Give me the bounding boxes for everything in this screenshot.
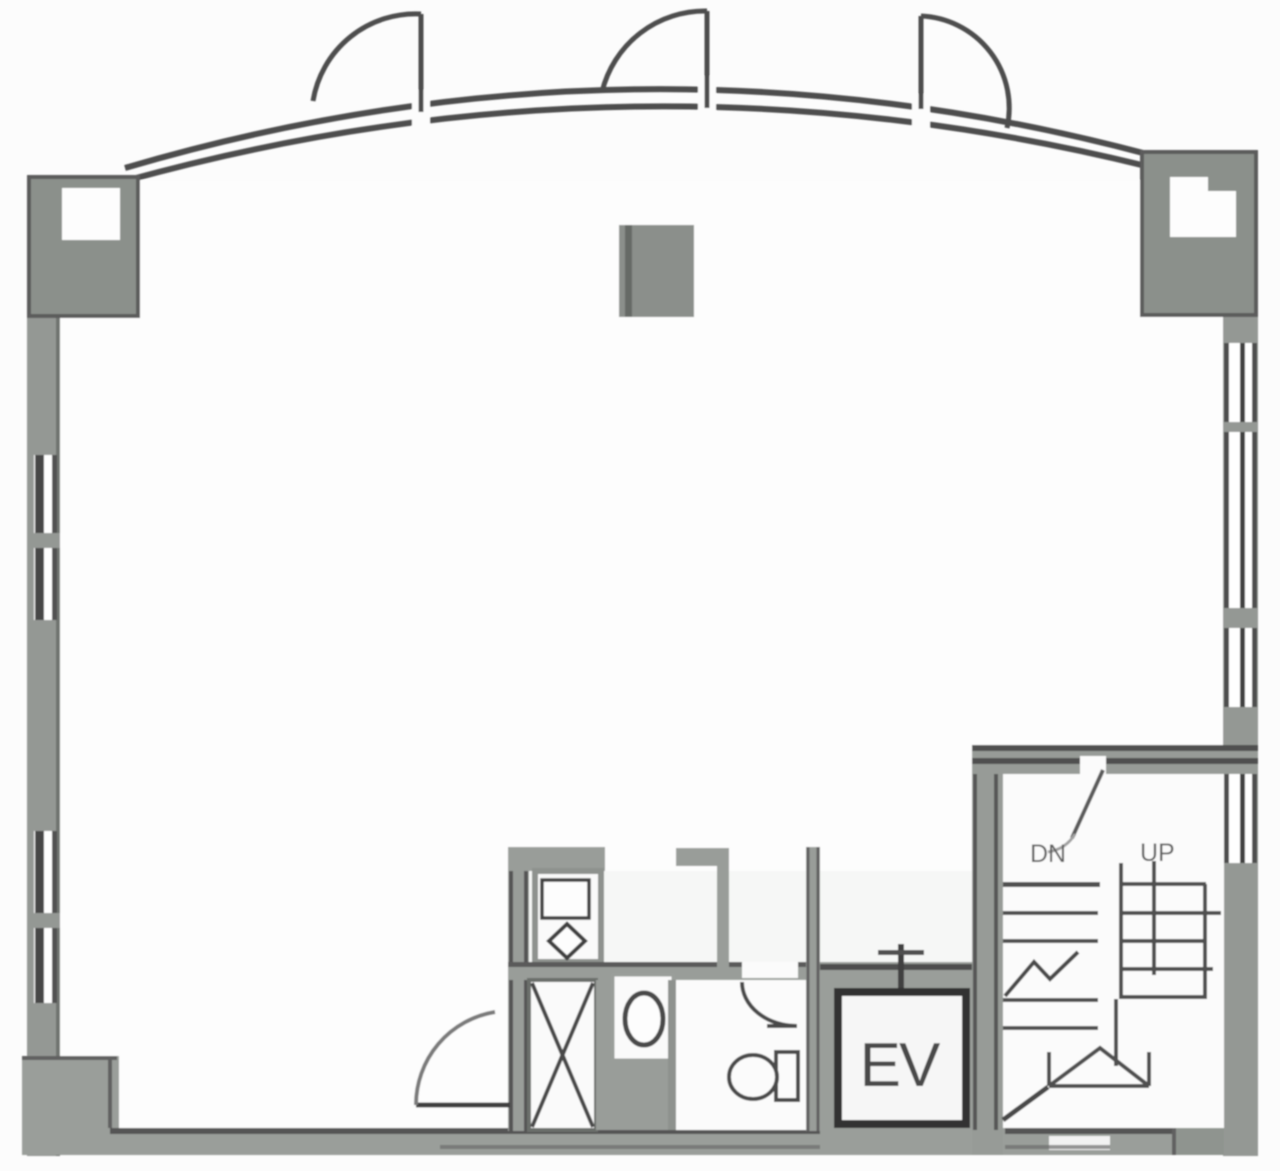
svg-text:EV: EV bbox=[860, 1031, 941, 1100]
svg-text:DN: DN bbox=[1030, 840, 1066, 868]
svg-text:UP: UP bbox=[1140, 839, 1175, 867]
